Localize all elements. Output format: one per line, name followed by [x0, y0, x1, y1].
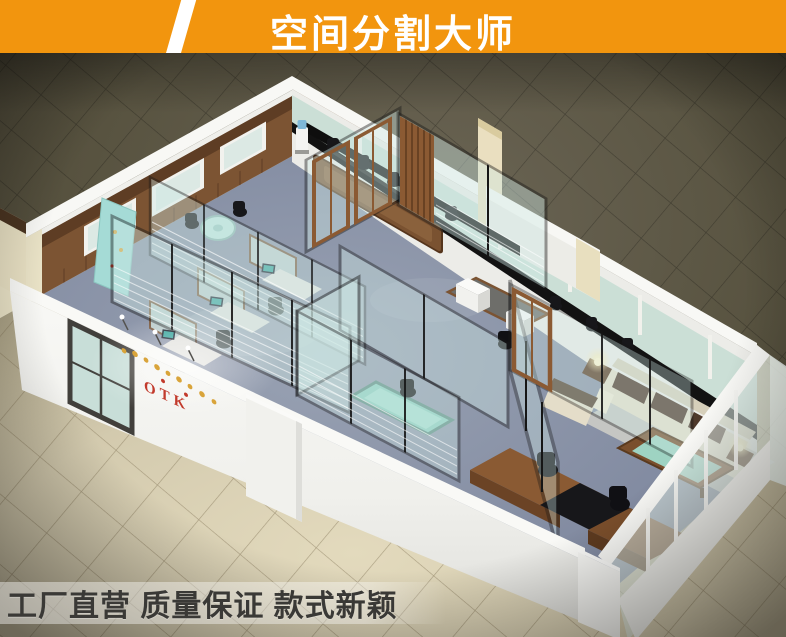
page-title: 空间分割大师: [0, 3, 786, 58]
promo-image: OTK: [0, 0, 786, 637]
slogan-text: 工厂直营 质量保证 款式新颖: [0, 581, 398, 625]
office-3d-render: OTK: [0, 0, 786, 637]
title-banner: 空间分割大师: [0, 0, 786, 53]
slogan-band: 工厂直营 质量保证 款式新颖: [0, 582, 446, 624]
vignette: [0, 0, 786, 637]
